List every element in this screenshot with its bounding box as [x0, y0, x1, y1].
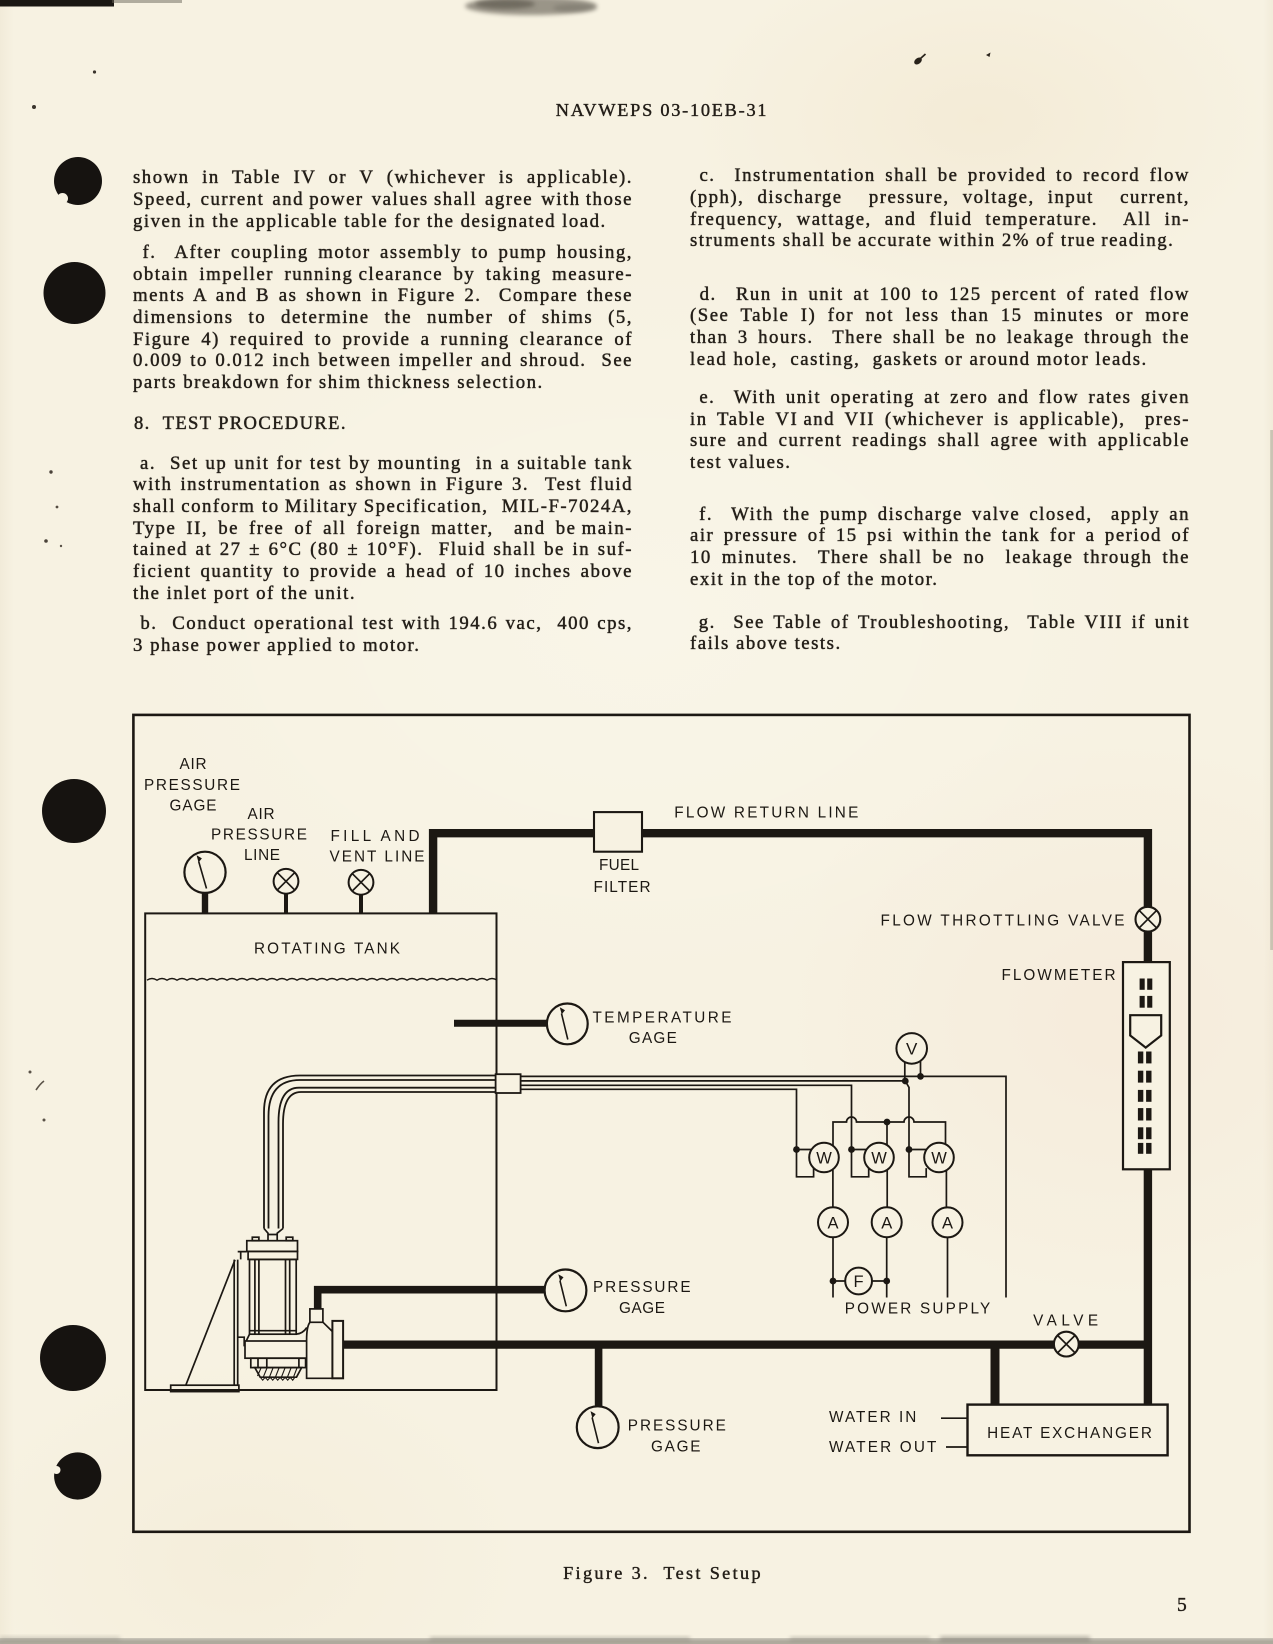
svg-text:FUEL: FUEL	[599, 857, 639, 874]
svg-text:W: W	[871, 1150, 887, 1168]
svg-text:PRESSURE: PRESSURE	[593, 1279, 691, 1296]
svg-text:FILTER: FILTER	[594, 879, 651, 896]
svg-text:TEMPERATURE: TEMPERATURE	[593, 1010, 732, 1027]
svg-text:LINE: LINE	[244, 847, 280, 864]
svg-text:VALVE: VALVE	[1033, 1312, 1098, 1329]
svg-text:GAGE: GAGE	[629, 1030, 677, 1047]
svg-text:V: V	[906, 1040, 918, 1059]
svg-text:F: F	[854, 1273, 864, 1291]
svg-text:PRESSURE: PRESSURE	[211, 827, 307, 844]
svg-text:FLOWMETER: FLOWMETER	[1002, 967, 1116, 984]
svg-text:FILL AND: FILL AND	[331, 828, 420, 845]
svg-text:W: W	[816, 1150, 832, 1168]
svg-text:PRESSURE: PRESSURE	[144, 777, 240, 794]
svg-text:WATER IN: WATER IN	[829, 1409, 916, 1426]
svg-text:A: A	[942, 1215, 953, 1233]
svg-text:ROTATING TANK: ROTATING TANK	[254, 941, 401, 958]
svg-text:PRESSURE: PRESSURE	[628, 1418, 726, 1435]
svg-text:A: A	[827, 1215, 838, 1233]
svg-text:W: W	[931, 1150, 947, 1168]
svg-text:A: A	[881, 1214, 892, 1232]
svg-text:GAGE: GAGE	[619, 1300, 665, 1317]
svg-text:VENT LINE: VENT LINE	[330, 849, 425, 866]
svg-text:AIR: AIR	[180, 756, 207, 773]
svg-text:AIR: AIR	[248, 806, 275, 823]
svg-text:FLOW RETURN LINE: FLOW RETURN LINE	[674, 805, 858, 822]
svg-text:GAGE: GAGE	[170, 798, 217, 815]
svg-text:GAGE: GAGE	[651, 1439, 701, 1456]
svg-text:WATER OUT: WATER OUT	[829, 1439, 936, 1456]
svg-text:FLOW THROTTLING VALVE: FLOW THROTTLING VALVE	[881, 912, 1125, 929]
svg-text:POWER SUPPLY: POWER SUPPLY	[845, 1301, 991, 1318]
